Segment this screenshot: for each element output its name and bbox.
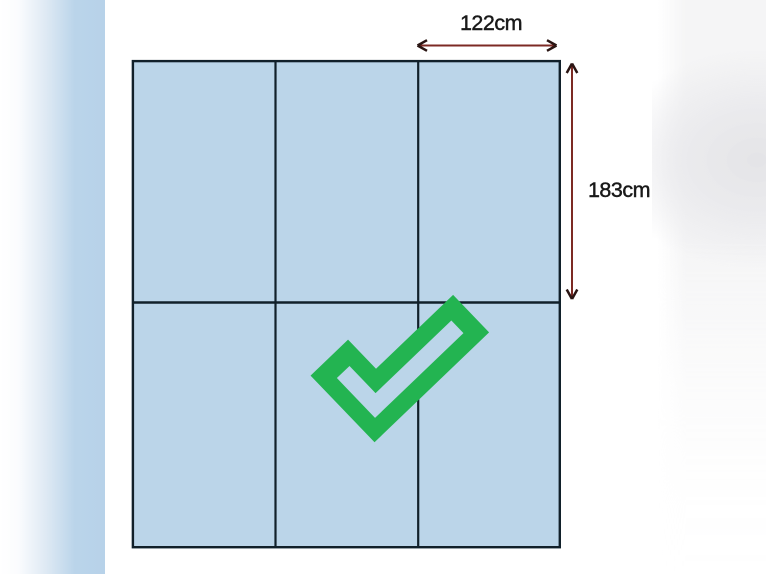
svg-text:122cm: 122cm <box>460 11 522 35</box>
svg-text:183cm: 183cm <box>588 178 650 202</box>
